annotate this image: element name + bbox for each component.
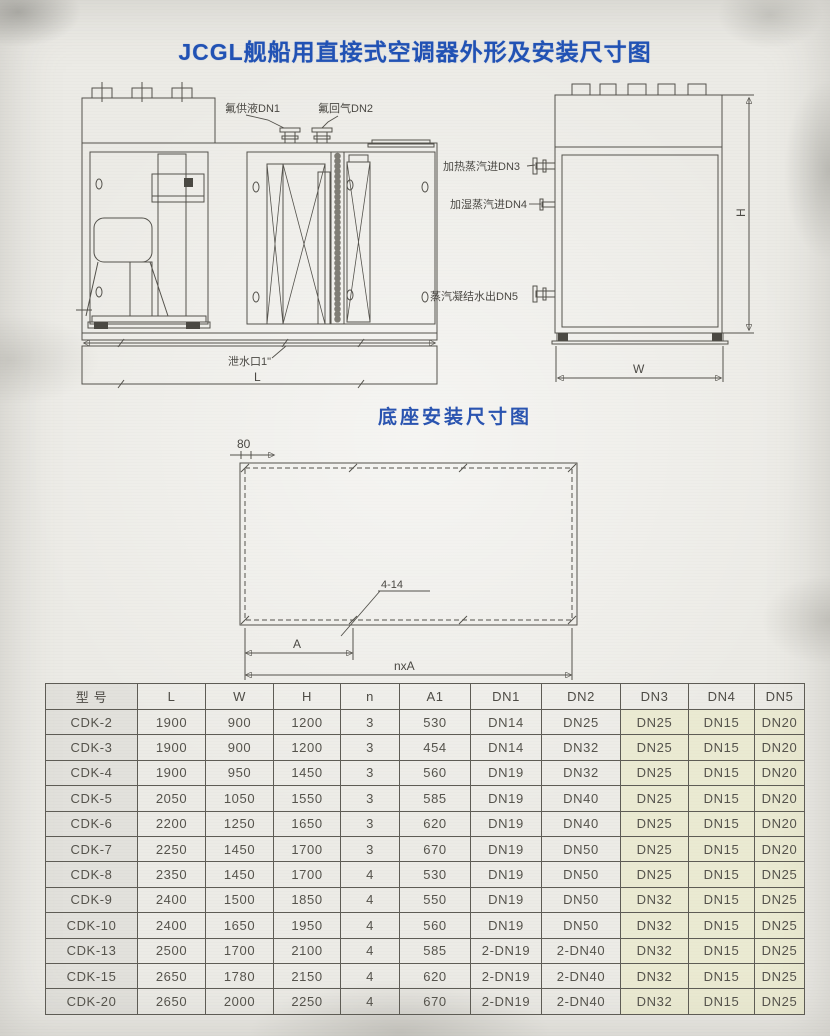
value-cell: DN32 xyxy=(621,938,689,963)
spec-table-body: CDK-2190090012003530DN14DN25DN25DN15DN20… xyxy=(46,710,805,1015)
value-cell: 4 xyxy=(341,913,400,938)
value-cell: DN15 xyxy=(689,811,755,836)
value-cell: 4 xyxy=(341,938,400,963)
table-row: CDK-52050105015503585DN19DN40DN25DN15DN2… xyxy=(46,786,805,811)
value-cell: DN15 xyxy=(689,913,755,938)
value-cell: 1450 xyxy=(206,862,274,887)
table-row: CDK-3190090012003454DN14DN32DN25DN15DN20 xyxy=(46,735,805,760)
value-cell: 1900 xyxy=(138,760,206,785)
unit-body xyxy=(82,143,437,333)
value-cell: 2-DN19 xyxy=(471,938,542,963)
value-cell: DN15 xyxy=(689,938,755,963)
model-cell: CDK-10 xyxy=(46,913,138,938)
value-cell: 1780 xyxy=(206,963,274,988)
dn5-label: 蒸汽凝结水出DN5 xyxy=(430,289,518,303)
value-cell: 2-DN40 xyxy=(542,963,621,988)
table-row: CDK-2190090012003530DN14DN25DN25DN15DN20 xyxy=(46,710,805,735)
column-header: W xyxy=(206,684,274,710)
value-cell: 3 xyxy=(341,786,400,811)
model-cell: CDK-6 xyxy=(46,811,138,836)
value-cell: DN50 xyxy=(542,862,621,887)
value-cell: 1050 xyxy=(206,786,274,811)
value-cell: 4 xyxy=(341,862,400,887)
value-cell: DN50 xyxy=(542,887,621,912)
value-cell: 2400 xyxy=(138,913,206,938)
value-cell: 3 xyxy=(341,735,400,760)
value-cell: 530 xyxy=(400,710,471,735)
table-row: CDK-72250145017003670DN19DN50DN25DN15DN2… xyxy=(46,836,805,861)
value-cell: DN19 xyxy=(471,862,542,887)
value-cell: DN25 xyxy=(755,913,805,938)
value-cell: DN14 xyxy=(471,710,542,735)
column-header: DN3 xyxy=(621,684,689,710)
value-cell: 1650 xyxy=(274,811,341,836)
value-cell: DN40 xyxy=(542,811,621,836)
value-cell: DN15 xyxy=(689,710,755,735)
value-cell: 1250 xyxy=(206,811,274,836)
value-cell: DN32 xyxy=(542,735,621,760)
value-cell: DN15 xyxy=(689,786,755,811)
value-cell: 2-DN40 xyxy=(542,938,621,963)
coil-compartment xyxy=(247,152,435,324)
length-dim-label: L xyxy=(254,370,261,384)
value-cell: 900 xyxy=(206,710,274,735)
value-cell: 2500 xyxy=(138,938,206,963)
value-cell: 1700 xyxy=(274,836,341,861)
fan-compartment xyxy=(76,152,210,329)
value-cell: DN25 xyxy=(621,862,689,887)
value-cell: DN32 xyxy=(542,760,621,785)
value-cell: 2250 xyxy=(274,989,341,1014)
model-cell: CDK-15 xyxy=(46,963,138,988)
table-row: CDK-1526501780215046202-DN192-DN40DN32DN… xyxy=(46,963,805,988)
value-cell: 1450 xyxy=(206,836,274,861)
value-cell: 1200 xyxy=(274,735,341,760)
value-cell: 1500 xyxy=(206,887,274,912)
drain-port-label: 泄水口1" xyxy=(228,355,271,368)
value-cell: DN25 xyxy=(621,760,689,785)
value-cell: 1900 xyxy=(138,710,206,735)
page-title: JCGL舰船用直接式空调器外形及安装尺寸图 xyxy=(0,33,830,67)
table-row: CDK-102400165019504560DN19DN50DN32DN15DN… xyxy=(46,913,805,938)
model-cell: CDK-13 xyxy=(46,938,138,963)
value-cell: DN19 xyxy=(471,811,542,836)
pitch-dim-label: A xyxy=(293,637,301,651)
value-cell: 3 xyxy=(341,811,400,836)
value-cell: 3 xyxy=(341,760,400,785)
value-cell: 1950 xyxy=(274,913,341,938)
model-cell: CDK-2 xyxy=(46,710,138,735)
value-cell: DN20 xyxy=(755,811,805,836)
base-frame xyxy=(240,463,577,625)
value-cell: 454 xyxy=(400,735,471,760)
column-header: DN2 xyxy=(542,684,621,710)
value-cell: 2-DN19 xyxy=(471,963,542,988)
column-header: 型 号 xyxy=(46,684,138,710)
value-cell: 4 xyxy=(341,963,400,988)
value-cell: 560 xyxy=(400,760,471,785)
value-cell: 2050 xyxy=(138,786,206,811)
spec-table: 型 号LWHnA1DN1DN2DN3DN4DN5 CDK-21900900120… xyxy=(45,683,805,1015)
front-view-drawing: 氟供液DN1 氟回气DN2 泄水口1" L xyxy=(76,82,437,388)
model-cell: CDK-8 xyxy=(46,862,138,887)
value-cell: DN32 xyxy=(621,989,689,1014)
value-cell: 550 xyxy=(400,887,471,912)
value-cell: DN15 xyxy=(689,887,755,912)
base-diagram-title: 底座安装尺寸图 xyxy=(378,405,532,428)
value-cell: DN15 xyxy=(689,735,755,760)
value-cell: 2200 xyxy=(138,811,206,836)
table-row: CDK-1325001700210045852-DN192-DN40DN32DN… xyxy=(46,938,805,963)
value-cell: DN15 xyxy=(689,760,755,785)
value-cell: DN15 xyxy=(689,989,755,1014)
side-panel xyxy=(562,155,718,327)
model-cell: CDK-7 xyxy=(46,836,138,861)
model-cell: CDK-5 xyxy=(46,786,138,811)
value-cell: DN25 xyxy=(755,862,805,887)
total-pitch-dim-label: nxA xyxy=(394,659,415,673)
fan-section-top xyxy=(82,98,215,143)
value-cell: DN50 xyxy=(542,836,621,861)
value-cell: DN19 xyxy=(471,760,542,785)
value-cell: DN19 xyxy=(471,887,542,912)
base-strip xyxy=(82,333,437,340)
value-cell: 2350 xyxy=(138,862,206,887)
value-cell: DN20 xyxy=(755,836,805,861)
table-row: CDK-4190095014503560DN19DN32DN25DN15DN20 xyxy=(46,760,805,785)
spec-table-section: 型 号LWHnA1DN1DN2DN3DN4DN5 CDK-21900900120… xyxy=(45,683,805,1015)
value-cell: 1900 xyxy=(138,735,206,760)
value-cell: DN20 xyxy=(755,735,805,760)
value-cell: 2-DN19 xyxy=(471,989,542,1014)
value-cell: 1450 xyxy=(274,760,341,785)
value-cell: DN15 xyxy=(689,963,755,988)
value-cell: 3 xyxy=(341,836,400,861)
column-header: n xyxy=(341,684,400,710)
dn3-label: 加热蒸汽进DN3 xyxy=(443,159,520,173)
value-cell: 950 xyxy=(206,760,274,785)
spec-table-head-row: 型 号LWHnA1DN1DN2DN3DN4DN5 xyxy=(46,684,805,710)
value-cell: DN19 xyxy=(471,786,542,811)
column-header: A1 xyxy=(400,684,471,710)
unit-body-side xyxy=(555,95,722,333)
value-cell: 2100 xyxy=(274,938,341,963)
value-cell: 1850 xyxy=(274,887,341,912)
table-row: CDK-62200125016503620DN19DN40DN25DN15DN2… xyxy=(46,811,805,836)
value-cell: 2650 xyxy=(138,989,206,1014)
value-cell: 1650 xyxy=(206,913,274,938)
value-cell: 2000 xyxy=(206,989,274,1014)
value-cell: DN50 xyxy=(542,913,621,938)
value-cell: DN15 xyxy=(689,862,755,887)
value-cell: 620 xyxy=(400,963,471,988)
value-cell: DN20 xyxy=(755,710,805,735)
height-dim-label: H xyxy=(734,208,748,217)
table-row: CDK-2026502000225046702-DN192-DN40DN32DN… xyxy=(46,989,805,1014)
value-cell: DN19 xyxy=(471,913,542,938)
value-cell: DN25 xyxy=(621,836,689,861)
dn2-label: 氟回气DN2 xyxy=(318,101,373,115)
dn1-label: 氟供液DN1 xyxy=(225,101,280,115)
dn4-label: 加湿蒸汽进DN4 xyxy=(450,197,527,211)
value-cell: DN40 xyxy=(542,786,621,811)
value-cell: DN25 xyxy=(542,710,621,735)
width-dim-label: W xyxy=(633,362,645,376)
value-cell: DN25 xyxy=(621,811,689,836)
side-view-drawing: 加热蒸汽进DN3 加湿蒸汽进DN4 蒸汽凝结水出DN5 H W xyxy=(430,84,754,382)
value-cell: DN15 xyxy=(689,836,755,861)
value-cell: DN20 xyxy=(755,786,805,811)
value-cell: 1700 xyxy=(206,938,274,963)
value-cell: 2-DN40 xyxy=(542,989,621,1014)
value-cell: DN25 xyxy=(755,938,805,963)
value-cell: 2150 xyxy=(274,963,341,988)
column-header: DN5 xyxy=(755,684,805,710)
value-cell: DN14 xyxy=(471,735,542,760)
value-cell: DN25 xyxy=(755,963,805,988)
value-cell: DN32 xyxy=(621,913,689,938)
lifting-lug-icon xyxy=(572,84,706,95)
base-plan-drawing: 底座安装尺寸图 80 4-14 A xyxy=(230,405,577,680)
value-cell: 2250 xyxy=(138,836,206,861)
model-cell: CDK-9 xyxy=(46,887,138,912)
value-cell: 900 xyxy=(206,735,274,760)
table-row: CDK-92400150018504550DN19DN50DN32DN15DN2… xyxy=(46,887,805,912)
model-cell: CDK-3 xyxy=(46,735,138,760)
value-cell: 3 xyxy=(341,710,400,735)
mounting-holes-label: 4-14 xyxy=(381,579,403,591)
refrigerant-pipe-icon xyxy=(280,128,332,143)
top-access-plate xyxy=(368,140,434,147)
column-header: L xyxy=(138,684,206,710)
value-cell: DN25 xyxy=(621,710,689,735)
value-cell: DN25 xyxy=(755,989,805,1014)
value-cell: 2400 xyxy=(138,887,206,912)
base-strip-side xyxy=(557,333,723,341)
model-cell: CDK-20 xyxy=(46,989,138,1014)
value-cell: 530 xyxy=(400,862,471,887)
document-page: JCGL舰船用直接式空调器外形及安装尺寸图 xyxy=(0,0,830,1036)
model-cell: CDK-4 xyxy=(46,760,138,785)
column-header: DN1 xyxy=(471,684,542,710)
value-cell: 560 xyxy=(400,913,471,938)
value-cell: DN19 xyxy=(471,836,542,861)
column-header: H xyxy=(274,684,341,710)
value-cell: 620 xyxy=(400,811,471,836)
value-cell: DN32 xyxy=(621,887,689,912)
value-cell: 670 xyxy=(400,836,471,861)
table-row: CDK-82350145017004530DN19DN50DN25DN15DN2… xyxy=(46,862,805,887)
value-cell: DN25 xyxy=(755,887,805,912)
technical-drawings: 氟供液DN1 氟回气DN2 泄水口1" L xyxy=(0,70,830,680)
value-cell: 585 xyxy=(400,786,471,811)
column-header: DN4 xyxy=(689,684,755,710)
offset-dim-label: 80 xyxy=(237,437,251,451)
value-cell: DN25 xyxy=(621,786,689,811)
lifting-lug-icon xyxy=(92,82,192,102)
value-cell: DN20 xyxy=(755,760,805,785)
value-cell: 585 xyxy=(400,938,471,963)
value-cell: 1550 xyxy=(274,786,341,811)
value-cell: 4 xyxy=(341,887,400,912)
value-cell: 670 xyxy=(400,989,471,1014)
steam-pipe-icon xyxy=(533,158,555,302)
value-cell: 2650 xyxy=(138,963,206,988)
value-cell: 1700 xyxy=(274,862,341,887)
value-cell: 4 xyxy=(341,989,400,1014)
value-cell: DN32 xyxy=(621,963,689,988)
value-cell: DN25 xyxy=(621,735,689,760)
value-cell: 1200 xyxy=(274,710,341,735)
